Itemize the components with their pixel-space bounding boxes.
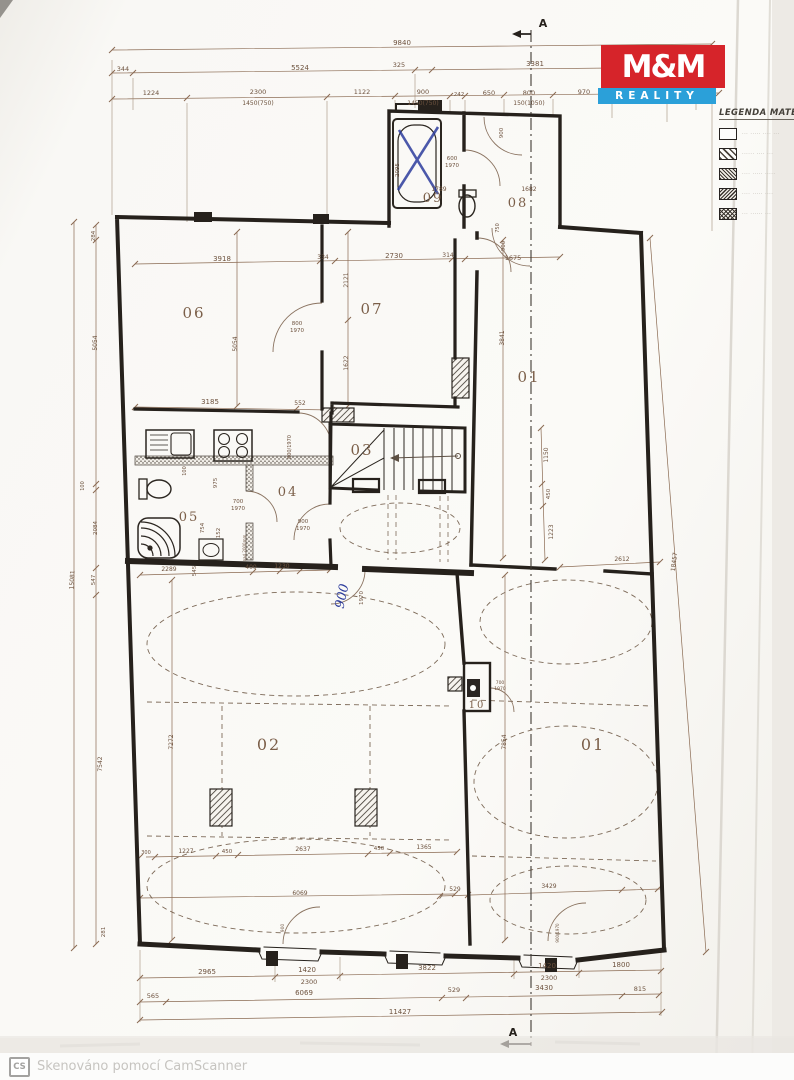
dimension-label: 2084: [93, 521, 99, 535]
legend-item: ···· ····· ····: [719, 188, 794, 200]
toilet-icon-2: [139, 479, 171, 499]
legend-label: ··· ······ ···: [742, 211, 771, 217]
dimension-label: 529: [448, 986, 460, 994]
dimension-label: 815: [634, 985, 646, 993]
dimension-label: 100: [182, 466, 188, 476]
dimension-label: 750: [495, 223, 501, 233]
dimension-label: 300: [141, 850, 151, 856]
dimension-label: 2300: [250, 88, 267, 96]
legend-title: LEGENDA MATE: [719, 108, 794, 120]
legend-swatch-dots: [719, 208, 737, 220]
legend-label: ··· ····· ···· ···: [742, 131, 780, 137]
dimension-label: 565: [147, 992, 159, 1000]
dimension-label: 1970: [359, 591, 365, 605]
dimension-label: 1420: [538, 962, 556, 970]
walls: [117, 100, 664, 972]
dimension-label: 3429: [541, 883, 556, 890]
legend-swatch-hatch3: [719, 188, 737, 200]
dimension-label: 2095: [395, 163, 401, 177]
dimension-label: 450: [374, 846, 385, 852]
legend-item: ··· ······ ···: [719, 208, 794, 220]
dimension-label: 450: [546, 488, 552, 499]
dimension-label: 1150: [543, 447, 550, 462]
legend-rows: ··· ····· ···· ········· ···· ······· ··…: [719, 128, 794, 220]
dimension-label: 3185: [201, 398, 219, 406]
legend-swatch-hatch2: [719, 168, 737, 180]
dimension-label: 529: [449, 886, 461, 893]
dimension-label: 1675: [505, 254, 522, 262]
dimension-label: 5524: [291, 64, 309, 72]
dimension-label: 3430: [535, 984, 553, 992]
logo-reality: REALITY: [598, 88, 716, 104]
dimension-label: 100: [80, 481, 86, 491]
dimension-label: 11427: [389, 1008, 411, 1016]
legend-swatch-hatch1: [719, 148, 737, 160]
dimension-label: 150(1050): [513, 100, 544, 107]
dimension-label: 3841: [499, 330, 506, 345]
dimension-label: 1420: [298, 966, 316, 974]
room-number: 03: [350, 441, 373, 459]
dimension-label: 2300: [541, 974, 558, 982]
legend-label: ···· ····· ····: [742, 191, 773, 197]
room-number: 01: [517, 368, 540, 386]
dimension-label: 6069: [292, 890, 307, 897]
handwritten-annotation: 900: [333, 583, 353, 610]
room-number: 05: [179, 510, 200, 525]
dimension-label: 7542: [97, 756, 104, 771]
dimension-label: 1450(750): [407, 100, 438, 107]
dimension-label: 1789: [431, 186, 446, 193]
dimension-label: 314: [442, 252, 454, 259]
dimension-label: 15081: [69, 570, 77, 590]
dimension-label: 9840: [393, 39, 411, 47]
camscanner-icon: CS: [9, 1057, 30, 1077]
dimension-label: 700: [496, 680, 505, 686]
dimension-label: 344: [117, 65, 129, 73]
dimension-label: 1450(750): [242, 100, 273, 107]
dimension-label: 284: [91, 230, 97, 241]
dimension-label: 7272: [168, 734, 175, 749]
dimension-label: 1227: [178, 848, 193, 855]
dimension-label: 2637: [295, 846, 310, 853]
dimension-label: 1970: [445, 163, 459, 169]
dimension-label: 800/1970: [287, 435, 293, 459]
dimension-label: 1224: [143, 89, 160, 97]
toilet-icon: [459, 190, 476, 217]
dimension-label: 900: [280, 924, 286, 933]
dimension-label: 1122: [354, 88, 371, 96]
room-number: 01: [581, 735, 605, 754]
bathtub-cross-out: [398, 127, 438, 194]
scan-edge-band: [0, 1036, 794, 1053]
dimension-label: 900/1970: [555, 923, 560, 943]
camscanner-watermark: CS Skenováno pomocí CamScanner: [0, 1053, 794, 1080]
dimension-label: 325: [393, 61, 405, 69]
room-number: 10: [469, 700, 486, 711]
wc-cabin-fixture: [467, 679, 480, 697]
dimension-label: 650: [483, 89, 495, 97]
floor-plan-svg: 984034455243253381266122423001450(750)11…: [0, 0, 794, 1080]
dimension-label: 3918: [213, 255, 231, 263]
dimension-label: 1365: [416, 844, 431, 851]
watermark-text: Skenováno pomocí CamScanner: [37, 1059, 247, 1074]
logo-mm: M&M: [601, 45, 725, 88]
dimension-label: 7854: [501, 734, 508, 749]
legend-label: ······ ···· ···: [742, 151, 773, 157]
legend-label: ···· ····· ·····: [742, 171, 775, 177]
dimension-label: 552: [294, 400, 306, 407]
dimension-label: 1622: [343, 355, 350, 370]
dimension-lines: [71, 41, 722, 1023]
dimension-label: 1970: [231, 506, 245, 512]
staircase: [331, 428, 461, 491]
room-number: 07: [360, 300, 383, 318]
dimension-label: 3381: [526, 60, 544, 68]
dimension-label: 2730: [385, 252, 403, 260]
dimension-label: 800: [523, 89, 535, 97]
dimension-label: 900: [501, 240, 507, 251]
dimension-label: 18457: [670, 552, 679, 572]
legend-item: ······ ···· ···: [719, 148, 794, 160]
room-number: 09: [423, 191, 444, 206]
dimension-label: 1682: [521, 186, 536, 193]
scanned-floor-plan-page: 984034455243253381266122423001450(750)11…: [0, 0, 794, 1080]
dimension-label: 334: [317, 254, 329, 261]
dimension-label: 1223: [548, 524, 555, 539]
dimension-label: 600: [447, 156, 458, 162]
dimension-label: 754: [200, 522, 206, 533]
corner-shower-icon: [138, 518, 180, 558]
dimension-label: 5054: [232, 336, 239, 351]
dimension-label: 970: [578, 88, 590, 96]
dimension-label: 800: [292, 321, 303, 327]
dimension-label: 700: [233, 499, 244, 505]
room-number: 06: [182, 304, 205, 322]
dimension-label: 900: [298, 519, 309, 525]
dimension-label: 281: [101, 927, 107, 938]
dimension-label: 2965: [198, 968, 216, 976]
dimension-label: 1970: [290, 328, 304, 334]
dimension-label: 900: [499, 127, 505, 138]
paper-artifacts: [0, 0, 794, 1080]
legend-item: ··· ····· ···· ···: [719, 128, 794, 140]
dimension-label: 1970: [296, 526, 310, 532]
mm-reality-logo: M&M REALITY: [601, 45, 725, 104]
dimension-label: 400: [245, 564, 257, 571]
dimension-label: 3822: [418, 964, 436, 972]
legend-swatch-solid: [719, 128, 737, 140]
dimension-label: 2300: [301, 978, 318, 986]
dimension-label: 547: [91, 574, 97, 585]
dimension-label: 152: [216, 528, 222, 539]
washbasin-icon: [199, 539, 223, 560]
dimension-label: 1230: [274, 563, 289, 570]
dimension-label: 975: [213, 477, 219, 488]
dimension-label: 242: [454, 92, 465, 98]
room-number: 02: [257, 735, 281, 754]
dimension-label: 1970: [494, 686, 506, 692]
kitchen-sink-icon: [146, 430, 194, 458]
dimension-label: 450: [222, 849, 233, 855]
dimension-label: nad 2000mm: [242, 535, 247, 562]
blue-annotations: [398, 127, 438, 194]
dimension-label: 5054: [92, 335, 99, 350]
dimension-label: 900: [417, 88, 429, 96]
material-legend: LEGENDA MATE ··· ····· ···· ········· ··…: [719, 108, 794, 220]
dimension-label: 2121: [343, 272, 350, 287]
room-number: 08: [508, 196, 529, 211]
dimension-label: 545: [192, 565, 198, 576]
dimension-label: 1800: [612, 961, 630, 969]
room-number: 04: [278, 485, 299, 500]
dimension-label: 2289: [161, 566, 176, 573]
dimension-label: 6069: [295, 989, 313, 997]
dimension-label: 2612: [614, 556, 629, 563]
section-marker: A: [539, 17, 548, 30]
legend-item: ···· ····· ·····: [719, 168, 794, 180]
